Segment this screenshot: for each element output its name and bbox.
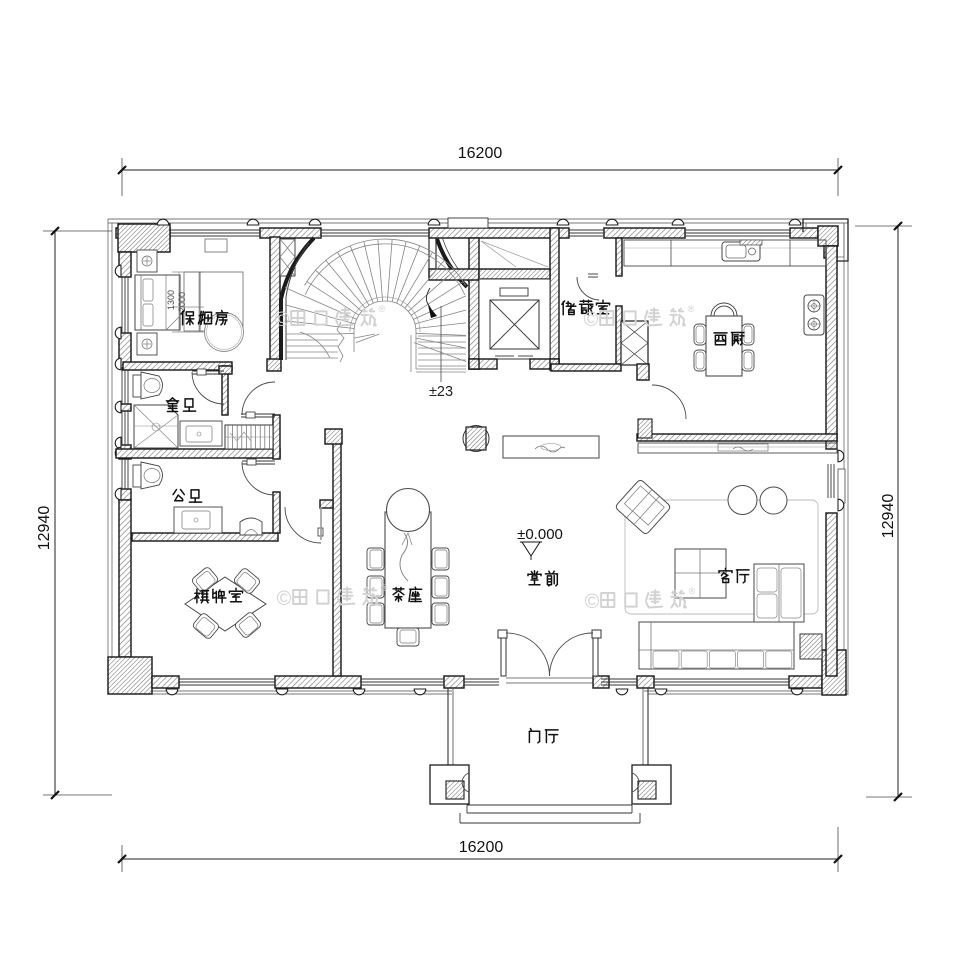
svg-text:®: ®	[381, 583, 388, 593]
svg-text:1300: 1300	[166, 290, 176, 310]
svg-text:®: ®	[689, 586, 696, 596]
svg-text:®: ®	[688, 304, 695, 314]
svg-text:±23: ±23	[429, 384, 453, 400]
svg-text:±0.000: ±0.000	[517, 526, 563, 543]
svg-text:12940: 12940	[36, 506, 53, 551]
svg-text:16200: 16200	[459, 839, 504, 856]
svg-text:©: ©	[585, 591, 600, 613]
svg-text:16200: 16200	[458, 145, 503, 162]
svg-text:2000: 2000	[177, 292, 187, 312]
svg-text:©: ©	[275, 309, 290, 331]
svg-text:®: ®	[379, 304, 386, 314]
svg-text:©: ©	[584, 309, 599, 331]
svg-text:©: ©	[277, 588, 292, 610]
svg-text:12940: 12940	[880, 494, 897, 539]
